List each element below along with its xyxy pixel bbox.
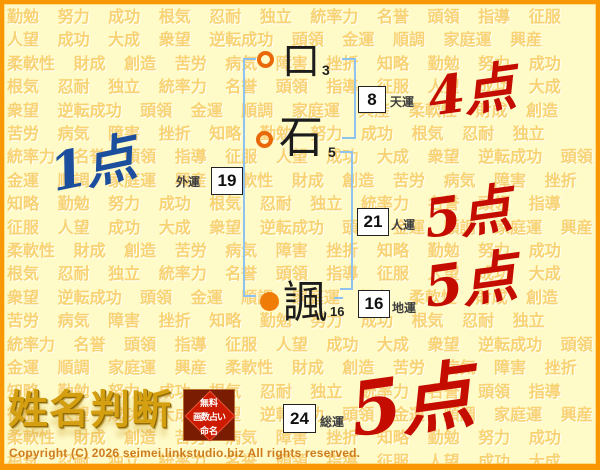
total-luck-score: 5点 xyxy=(345,358,476,448)
site-logo[interactable]: 姓名判断 xyxy=(8,390,172,430)
heaven-bracket-bottom-tick xyxy=(342,137,356,139)
heaven-luck-value-box: 8 xyxy=(358,86,386,113)
stamp-line-2: 画数占い xyxy=(184,410,234,423)
givenname-char1: 諷 xyxy=(283,281,327,325)
surname-char2-strokes: 5 xyxy=(328,144,336,160)
heaven-luck-score: 4点 xyxy=(425,60,517,124)
free-kazu-uranai-stamp[interactable]: 無料 画数占い 命名 xyxy=(183,389,235,441)
heaven-bracket-vertical xyxy=(354,58,356,139)
surname-char1-strokes: 3 xyxy=(322,62,330,78)
earth-connector-dash xyxy=(334,297,343,299)
surname-char1: 口 xyxy=(282,42,320,80)
person-luck-label: 人運 xyxy=(391,216,415,233)
earth-luck-value-box: 16 xyxy=(358,290,390,318)
person-luck-score: 5点 xyxy=(421,182,513,246)
stamp-line-1: 無料 xyxy=(184,396,234,409)
surname-char1-circle-icon xyxy=(257,51,274,68)
outer-luck-value-box: 19 xyxy=(211,167,243,195)
surname-char2-circle-icon xyxy=(256,131,273,148)
outer-bracket-vertical xyxy=(243,58,245,297)
earth-luck-label: 地運 xyxy=(392,299,416,316)
outer-luck-label: 外運 xyxy=(176,173,200,190)
total-luck-label: 総運 xyxy=(320,413,344,430)
person-bracket-vertical xyxy=(351,151,353,290)
earth-luck-score: 5点 xyxy=(421,248,519,316)
person-bracket-bottom-tick xyxy=(340,288,353,290)
givenname-char1-circle-icon xyxy=(260,292,279,311)
seimei-handan-page: 勤勉 努力 成功 根気 忍耐 独立 統率力 名誉 頭領 指導 征服 人望 成功 … xyxy=(0,0,600,470)
total-luck-value-box: 24 xyxy=(283,404,316,433)
outer-bracket-top-tick xyxy=(243,58,256,60)
outer-bracket-bottom-tick xyxy=(243,295,256,297)
person-bracket-top-tick xyxy=(340,151,353,153)
surname-char2: 石 xyxy=(279,116,323,160)
heaven-luck-label: 天運 xyxy=(390,93,414,110)
person-luck-value-box: 21 xyxy=(357,208,389,236)
stamp-line-3: 命名 xyxy=(184,424,234,437)
heaven-bracket-top-tick xyxy=(342,58,356,60)
copyright-text: Copyright (C) 2026 seimei.linkstudio.biz… xyxy=(9,446,360,460)
givenname-char1-strokes: 16 xyxy=(330,304,344,319)
